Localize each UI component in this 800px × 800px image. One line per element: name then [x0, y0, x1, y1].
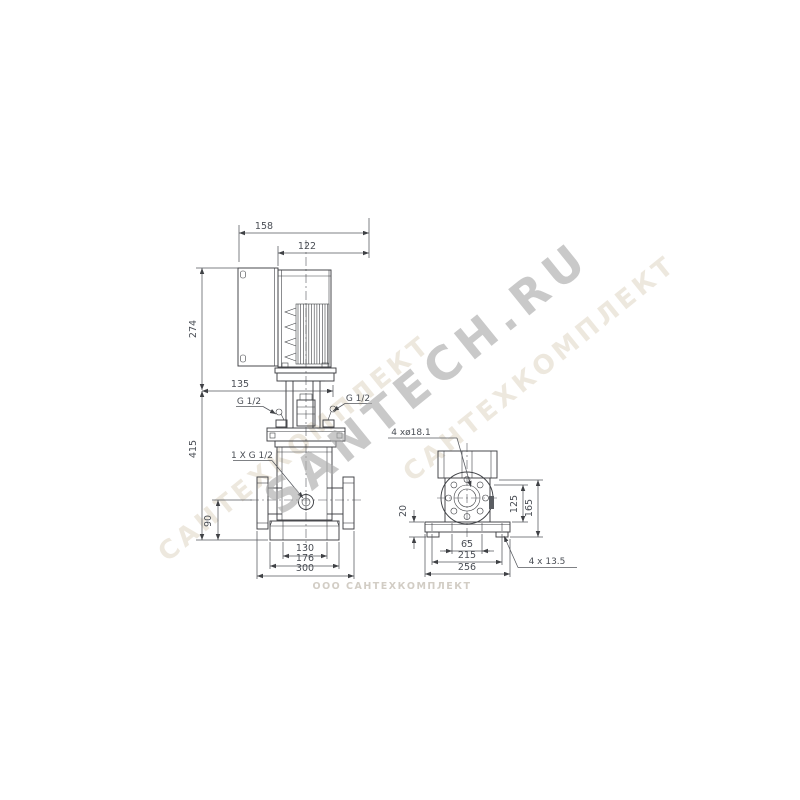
- svg-text:135: 135: [231, 379, 249, 390]
- vent-valve-left: [276, 409, 287, 427]
- svg-text:165: 165: [524, 499, 535, 517]
- svg-text:274: 274: [188, 320, 199, 338]
- svg-text:256: 256: [458, 562, 476, 573]
- svg-text:20: 20: [398, 505, 409, 517]
- dim-20: 20: [398, 505, 426, 549]
- motor-flange: [275, 363, 336, 381]
- fin-clips: [285, 308, 296, 361]
- motor-body: [278, 270, 331, 367]
- pump-base: [270, 521, 339, 540]
- svg-text:G 1/2: G 1/2: [237, 397, 261, 407]
- svg-text:1 X G 1/2: 1 X G 1/2: [231, 451, 273, 461]
- svg-text:122: 122: [298, 241, 316, 252]
- technical-drawing-image: САНТЕХКОМПЛЕКТ САНТЕХКОМПЛЕКТ: [0, 0, 800, 800]
- dim-122: 122: [278, 241, 369, 266]
- svg-text:415: 415: [188, 440, 199, 458]
- label-vent-left: G 1/2: [236, 397, 276, 414]
- callout-base-holes: 4 x 13.5: [504, 536, 577, 568]
- dim-274: 274: [188, 268, 238, 390]
- motor-fins: [298, 304, 328, 364]
- svg-text:65: 65: [461, 539, 473, 550]
- terminal-box: [238, 268, 278, 366]
- svg-text:215: 215: [458, 550, 476, 561]
- svg-text:158: 158: [255, 221, 273, 232]
- side-base-plate: [425, 522, 510, 537]
- svg-text:90: 90: [203, 515, 214, 527]
- flange-plug: [489, 496, 494, 509]
- dim-125: 125: [494, 485, 528, 522]
- svg-text:125: 125: [509, 495, 520, 513]
- watermark-company-line: ООО САНТЕХКОМПЛЕКТ: [313, 581, 472, 592]
- svg-text:300: 300: [296, 563, 314, 574]
- svg-text:4 x 13.5: 4 x 13.5: [529, 557, 566, 567]
- dim-165: 165: [499, 480, 543, 537]
- dim-158: 158: [239, 218, 369, 262]
- pump-dimensional-drawing: САНТЕХКОМПЛЕКТ САНТЕХКОМПЛЕКТ: [0, 0, 800, 800]
